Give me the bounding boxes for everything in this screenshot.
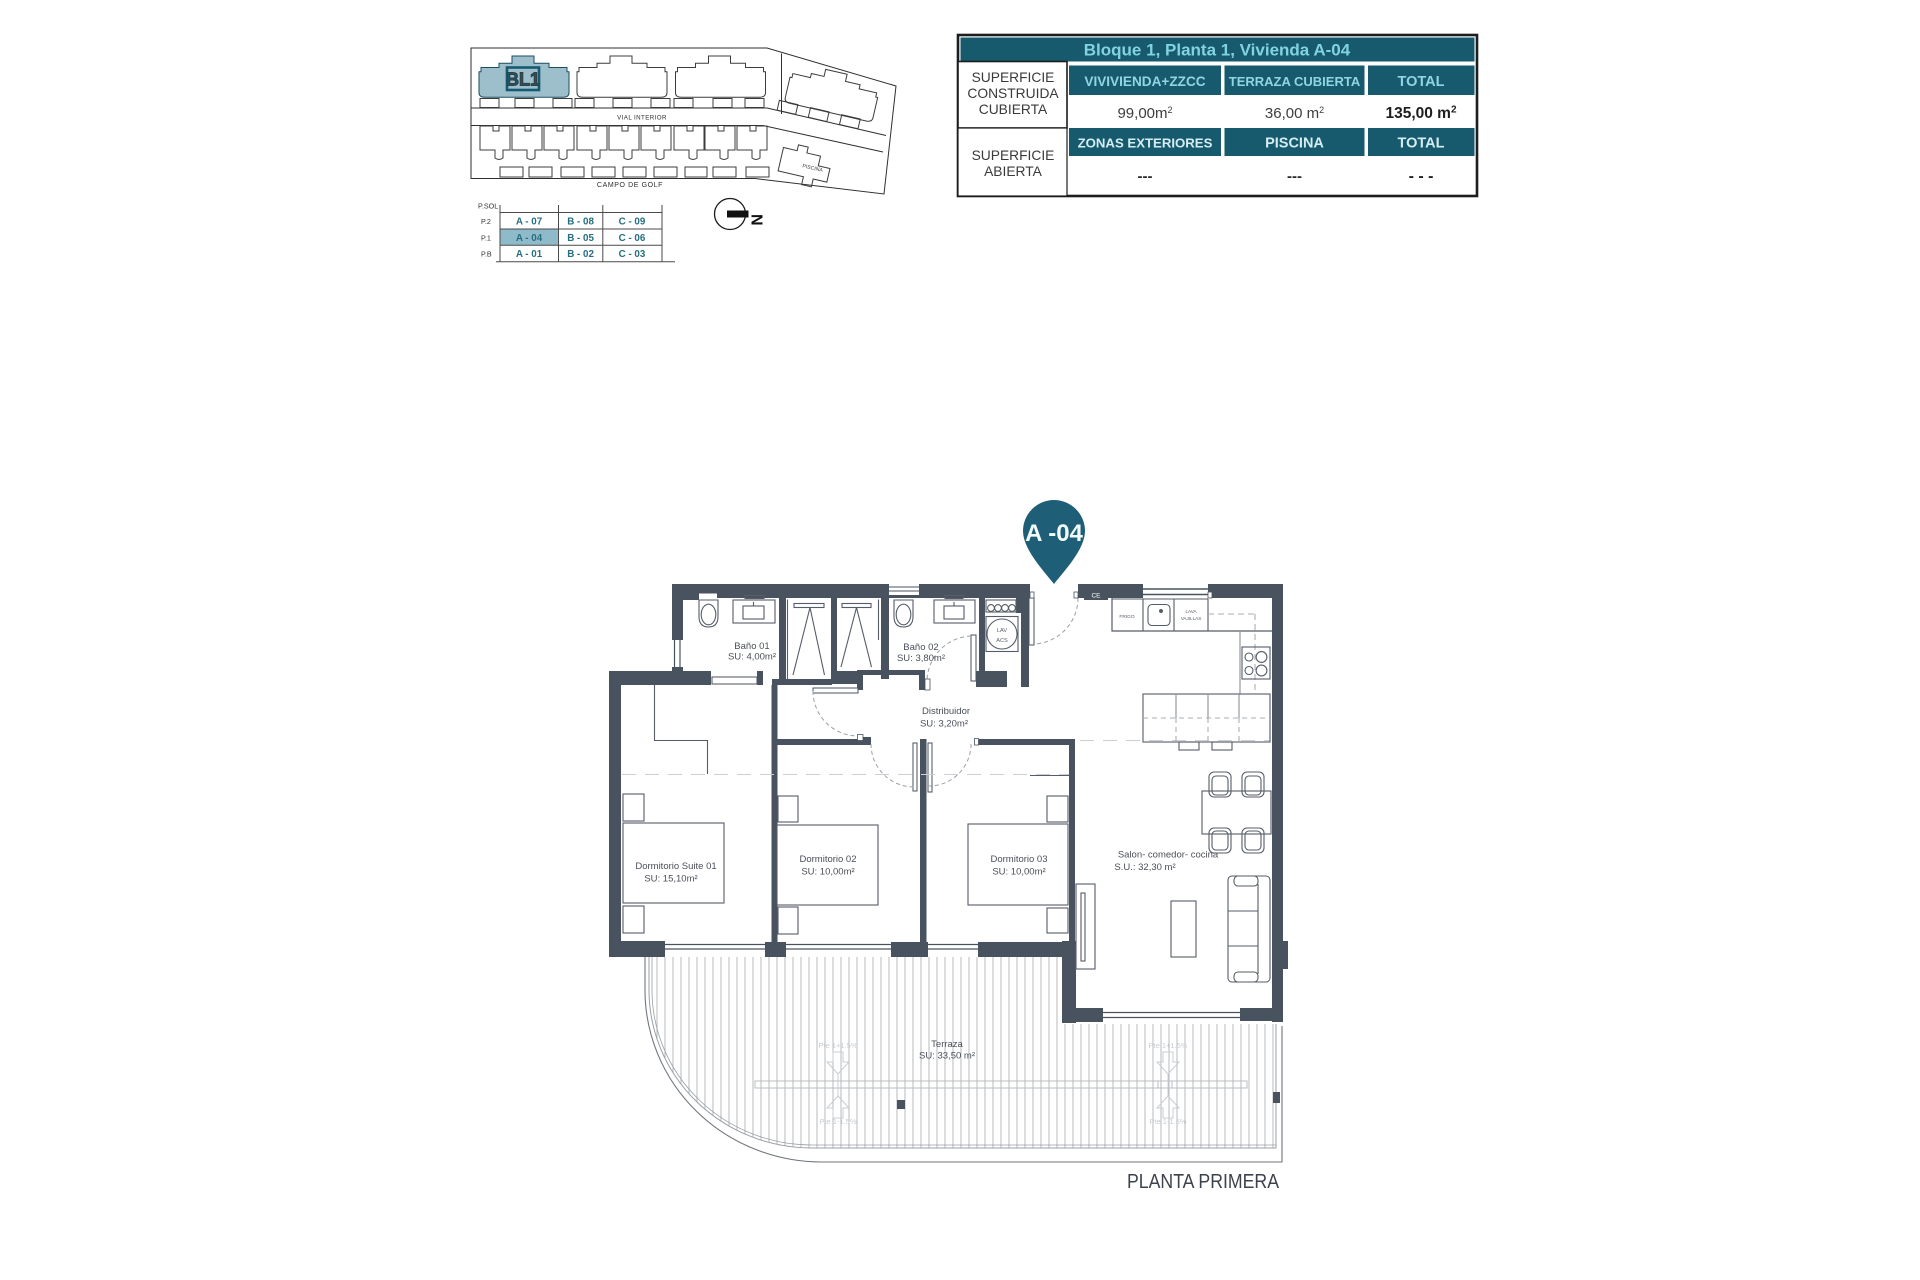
svg-text:CONSTRUIDA: CONSTRUIDA [967, 86, 1059, 101]
svg-text:CE: CE [1091, 593, 1101, 600]
svg-text:C - 09: C - 09 [619, 217, 646, 228]
svg-text:CAMPO DE GOLF: CAMPO DE GOLF [597, 182, 663, 189]
svg-text:C - 06: C - 06 [619, 233, 646, 244]
svg-text:P.B: P.B [481, 250, 492, 259]
svg-text:TERRAZA CUBIERTA: TERRAZA CUBIERTA [1229, 74, 1361, 89]
svg-text:A - 04: A - 04 [516, 233, 543, 244]
svg-text:ACS: ACS [996, 638, 1008, 644]
svg-text:SU: 10,00m²: SU: 10,00m² [992, 867, 1045, 878]
svg-text:A - 07: A - 07 [516, 217, 543, 228]
svg-text:VAJILLAS: VAJILLAS [1181, 616, 1202, 621]
svg-text:SUPERFICIE: SUPERFICIE [972, 148, 1055, 163]
svg-text:Dormitorio Suite 01: Dormitorio Suite 01 [635, 861, 716, 872]
svg-text:---: --- [1138, 168, 1153, 185]
svg-text:PISCINA: PISCINA [1265, 136, 1324, 152]
svg-text:LAVA: LAVA [1185, 609, 1197, 614]
svg-text:Pte 1+1.5%: Pte 1+1.5% [819, 1041, 858, 1050]
svg-text:SU: 3,20m²: SU: 3,20m² [920, 719, 968, 730]
svg-text:BL1: BL1 [506, 70, 540, 90]
svg-text:LAV: LAV [997, 628, 1007, 634]
svg-text:SU: 33,50 m²: SU: 33,50 m² [919, 1051, 975, 1062]
svg-text:B - 05: B - 05 [567, 233, 594, 244]
svg-text:PLANTA PRIMERA: PLANTA PRIMERA [1127, 1171, 1280, 1193]
svg-text:TOTAL: TOTAL [1398, 136, 1445, 152]
svg-text:P.1: P.1 [481, 233, 491, 242]
svg-text:Baño 02: Baño 02 [903, 642, 938, 653]
svg-text:Terraza: Terraza [931, 1039, 963, 1050]
svg-text:N: N [748, 214, 765, 226]
svg-text:SU: 15,10m²: SU: 15,10m² [644, 874, 697, 885]
svg-text:SU: 3,80m²: SU: 3,80m² [897, 653, 945, 664]
svg-text:FRIGO: FRIGO [1119, 614, 1134, 620]
svg-text:- - -: - - - [1409, 168, 1434, 185]
svg-text:A -04: A -04 [1025, 520, 1083, 547]
svg-text:CUBIERTA: CUBIERTA [979, 102, 1048, 117]
svg-text:TOTAL: TOTAL [1398, 74, 1445, 90]
svg-text:Pte 1+1.5%: Pte 1+1.5% [1149, 1041, 1188, 1050]
svg-text:99,00m2: 99,00m2 [1117, 105, 1172, 122]
svg-text:VIVIVIENDA+ZZCC: VIVIVIENDA+ZZCC [1084, 74, 1205, 89]
svg-text:Distribuidor: Distribuidor [922, 706, 970, 717]
svg-text:Salon- comedor- cocina: Salon- comedor- cocina [1118, 850, 1219, 861]
svg-text:Dormitorio 03: Dormitorio 03 [990, 854, 1047, 865]
svg-text:SUPERFICIE: SUPERFICIE [972, 70, 1055, 85]
svg-text:---: --- [1287, 168, 1302, 185]
svg-text:SU: 10,00m²: SU: 10,00m² [801, 867, 854, 878]
svg-text:A - 01: A - 01 [516, 249, 543, 260]
svg-text:36,00 m2: 36,00 m2 [1265, 105, 1324, 122]
svg-text:Dormitorio 02: Dormitorio 02 [799, 854, 856, 865]
svg-text:P.2: P.2 [481, 217, 491, 226]
svg-text:C - 03: C - 03 [619, 249, 646, 260]
svg-text:ABIERTA: ABIERTA [984, 164, 1043, 179]
svg-text:Baño 01: Baño 01 [734, 641, 769, 652]
svg-text:SU: 4,00m²: SU: 4,00m² [728, 652, 776, 663]
svg-text:135,00 m2: 135,00 m2 [1385, 105, 1457, 123]
svg-text:Pte 1-1.5%: Pte 1-1.5% [1149, 1117, 1186, 1126]
svg-text:Pte 1-1.5%: Pte 1-1.5% [819, 1117, 856, 1126]
svg-text:B - 08: B - 08 [567, 217, 594, 228]
svg-text:Bloque 1, Planta 1, Vivienda A: Bloque 1, Planta 1, Vivienda A-04 [1084, 41, 1351, 60]
svg-text:S.U.: 32,30 m²: S.U.: 32,30 m² [1114, 862, 1175, 873]
svg-text:B - 02: B - 02 [567, 249, 594, 260]
svg-text:VIAL INTERIOR: VIAL INTERIOR [617, 115, 667, 122]
svg-text:P.SOL: P.SOL [478, 202, 498, 211]
svg-text:ZONAS EXTERIORES: ZONAS EXTERIORES [1078, 136, 1213, 151]
